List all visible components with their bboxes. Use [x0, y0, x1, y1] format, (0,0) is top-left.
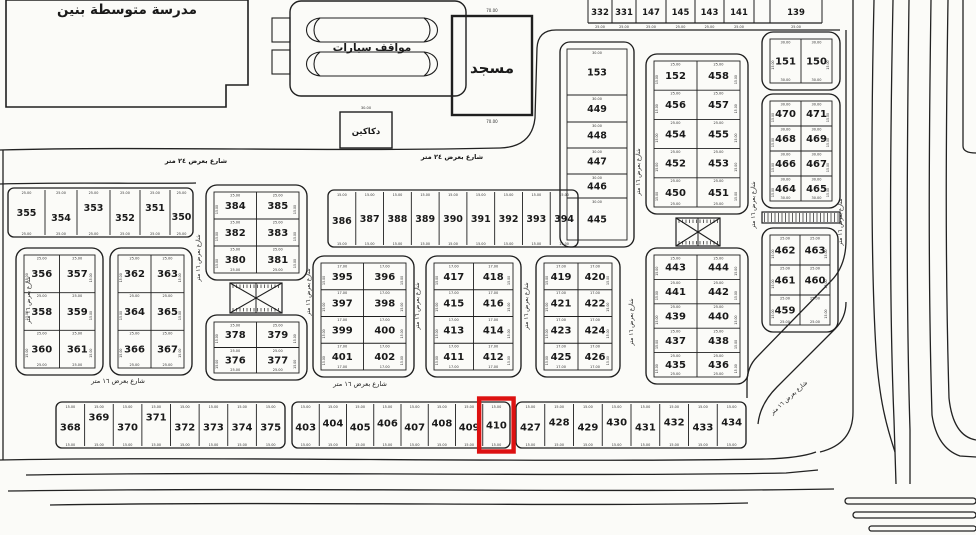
dimension-label: 25.00: [72, 332, 82, 336]
dimension-label: 15.00: [771, 113, 775, 122]
dimension-label: 30.00: [361, 106, 372, 110]
dimension-label: 15.00: [209, 443, 219, 447]
dimension-label: 25.00: [72, 363, 82, 367]
dimension-label: 25.00: [713, 330, 723, 334]
dimension-label: 15.00: [237, 405, 247, 409]
highway-lane-line: [929, 0, 976, 457]
dimension-label: 15.00: [178, 273, 182, 282]
highway-lane-line: [946, 0, 976, 440]
block-459-463: 46246315.0015.0046146015.0015.0045915.00…: [762, 228, 838, 332]
dimension-label: 25.00: [713, 305, 723, 309]
dimension-label: 25.00: [670, 330, 680, 334]
plot-number: 384: [225, 201, 246, 212]
dimension-label: 15.00: [606, 329, 610, 338]
dimension-label: 30.00: [780, 40, 790, 44]
dimension-label: 30.00: [780, 177, 790, 181]
dimension-label: 15.00: [328, 443, 338, 447]
plot-number: 411: [443, 352, 464, 363]
plot-number: 407: [404, 422, 425, 433]
dimension-label: 15.00: [698, 405, 708, 409]
dimension-label: 15.00: [89, 273, 93, 282]
plot-number: 332: [591, 8, 609, 18]
plot-number: 379: [267, 330, 288, 341]
dimension-label: 25.00: [810, 266, 820, 270]
dimension-label: 15.00: [476, 242, 486, 246]
dimension-label: 15.00: [180, 405, 190, 409]
block-362-367: 36236315.0015.0036436515.0015.0036636715…: [110, 248, 192, 375]
dimension-label: 15.00: [531, 242, 541, 246]
dimension-label: 15.00: [393, 193, 403, 197]
plot-number: 361: [67, 345, 88, 356]
plot-number: 380: [225, 255, 246, 266]
shops-parcel: دكاكين 30.00: [340, 106, 392, 148]
dimension-label: 15.00: [237, 443, 247, 447]
dimension-label: 15.00: [669, 405, 679, 409]
dimension-label: 15.00: [583, 405, 593, 409]
plot-number: 383: [267, 228, 288, 239]
plot-number: 441: [665, 287, 686, 298]
dimension-label: 15.00: [400, 356, 404, 365]
dimension-label: 15.00: [365, 193, 375, 197]
dimension-label: 30.00: [811, 78, 821, 82]
street-label: شارع بعرض ١٦ متر: [751, 181, 757, 229]
parking-stall-row: [307, 18, 438, 42]
plot-number: 385: [267, 201, 288, 212]
plot-number: 355: [17, 208, 37, 219]
dimension-label: 15.00: [641, 443, 651, 447]
utility-block: [762, 212, 840, 223]
dimension-label: 30.00: [780, 78, 790, 82]
plot-number: 421: [551, 299, 572, 310]
dimension-label: 15.00: [655, 75, 659, 84]
dimension-label: 15.00: [410, 405, 420, 409]
strip-row-139-332: 33225.0033125.0014725.0014525.0014325.00…: [588, 0, 822, 29]
road-edge-left-bottom: [0, 183, 196, 184]
dimension-label: 15.00: [65, 405, 75, 409]
dimension-label: 15.00: [178, 349, 182, 358]
plot-number: 366: [124, 345, 145, 356]
plot-number: 408: [431, 418, 452, 429]
street-label: شارع بعرض ١٦ متر: [196, 234, 202, 282]
dimension-label: 17.00: [488, 318, 498, 322]
dimension-label: 25.00: [646, 25, 656, 29]
plot-number: 152: [665, 71, 686, 82]
plot-number: 416: [483, 299, 504, 310]
plot-number: 151: [775, 56, 796, 67]
dimension-label: 15.00: [771, 60, 775, 69]
dimension-label: 15.00: [215, 205, 219, 214]
dimension-label: 25.00: [670, 62, 680, 66]
plot-number: 471: [806, 109, 827, 120]
plot-number: 458: [708, 71, 729, 82]
dimension-label: 25.00: [120, 191, 130, 195]
highway-lane-line: [891, 0, 897, 484]
dimension-label: 15.00: [531, 193, 541, 197]
dimension-label: 30.00: [811, 127, 821, 131]
dimension-label: 25.00: [810, 296, 820, 300]
dimension-label: 15.00: [655, 267, 659, 276]
plot-number: 439: [665, 311, 686, 322]
dimension-label: 25.00: [595, 25, 605, 29]
plot-number: 440: [708, 311, 729, 322]
dimension-label: 15.00: [824, 309, 828, 318]
plot-number: 391: [471, 214, 491, 225]
dimension-label: 25.00: [273, 268, 283, 272]
cadastral-map: مدرسة متوسطة بنين مواقف سيارات مسجد 70.0…: [0, 0, 976, 535]
dimension-label: 17.00: [556, 318, 566, 322]
dimension-label: 17.00: [380, 291, 390, 295]
highway-lane-line: [963, 0, 976, 153]
plot-number: 452: [665, 159, 686, 170]
plot-number: 331: [615, 8, 633, 18]
dimension-label: 25.00: [89, 232, 99, 236]
plot-number: 424: [585, 325, 606, 336]
plot-number: 356: [31, 269, 52, 280]
plot-number: 386: [332, 216, 352, 227]
dimension-label: 17.00: [337, 291, 347, 295]
dimension-label: 25.00: [713, 62, 723, 66]
dimension-label: 15.00: [545, 303, 549, 312]
dimension-label: 15.00: [123, 443, 133, 447]
dimension-label: 25.00: [713, 281, 723, 285]
dimension-label: 25.00: [162, 256, 172, 260]
plot-number: 437: [665, 336, 686, 347]
block-376-379: 37837915.0015.0037637715.0015.0025.0025.…: [206, 315, 307, 380]
dimension-label: 15.00: [771, 188, 775, 197]
dimension-label: 15.00: [383, 405, 393, 409]
dimension-label: 15.00: [435, 303, 439, 312]
plot-number: 412: [483, 352, 504, 363]
plot-number: 359: [67, 307, 88, 318]
dimension-label: 25.00: [670, 179, 680, 183]
dimension-label: 30.00: [780, 127, 790, 131]
dimension-label: 25.00: [670, 354, 680, 358]
plot-number: 428: [549, 417, 570, 428]
plot-number: 451: [708, 188, 729, 199]
plot-number: 364: [124, 307, 145, 318]
dimension-label: 17.00: [488, 264, 498, 268]
dimension-label: 15.00: [119, 349, 123, 358]
dimension-label: 25.00: [177, 232, 187, 236]
plot-number: 393: [526, 214, 546, 225]
block-450-458: 15245815.0015.0045645715.0015.0045445515…: [646, 54, 748, 214]
dimension-label: 25.00: [56, 232, 66, 236]
plot-number: 445: [587, 214, 607, 225]
dimension-label: 25.00: [713, 92, 723, 96]
plot-number: 388: [388, 214, 408, 225]
dimension-label: 15.00: [89, 311, 93, 320]
highway-lane-line: [907, 0, 910, 484]
dimension-label: 15.00: [655, 291, 659, 300]
plot-number: 454: [665, 129, 686, 140]
dimension-label: 17.00: [449, 318, 459, 322]
parking-label: مواقف سيارات: [333, 42, 411, 54]
plot-number: 371: [146, 412, 167, 423]
parking-stall-row: [307, 52, 438, 76]
dimension-label: 15.00: [393, 242, 403, 246]
dimension-label: 17.00: [590, 264, 600, 268]
dimension-label: 15.00: [293, 232, 297, 241]
dimension-label: 25.00: [37, 363, 47, 367]
dimension-label: 25.00: [713, 372, 723, 376]
dimension-label: 15.00: [293, 334, 297, 343]
plot-number: 406: [377, 418, 398, 429]
dimension-label: 15.00: [293, 205, 297, 214]
dimension-label: 15.00: [655, 340, 659, 349]
dimension-label: 30.00: [780, 196, 790, 200]
plot-number: 456: [665, 100, 686, 111]
dimension-label: 15.00: [119, 273, 123, 282]
plot-number: 376: [225, 356, 246, 367]
street-label: شارع بعرض ١٦ متر: [90, 377, 145, 385]
dimension-label: 17.00: [590, 318, 600, 322]
dimension-label: 15.00: [94, 443, 104, 447]
dimension-label: 25.00: [230, 268, 240, 272]
dimension-label: 15.00: [734, 163, 738, 172]
block-151-150: 15115015.0015.0030.0030.0030.0030.00: [762, 32, 840, 90]
dimension-label: 30.00: [592, 51, 602, 55]
dimension-label: 15.00: [437, 405, 447, 409]
dimension-label: 25.00: [670, 92, 680, 96]
dimension-label: 17.00: [380, 345, 390, 349]
dimension-label: 15.00: [826, 163, 830, 172]
dimension-label: 15.00: [545, 276, 549, 285]
dimension-label: 17.00: [590, 291, 600, 295]
dimension-label: 17.00: [590, 365, 600, 369]
dimension-label: 15.00: [293, 360, 297, 369]
plot-number: 426: [585, 352, 606, 363]
dimension-label: 15.00: [492, 443, 502, 447]
dimension-label: 15.00: [437, 443, 447, 447]
dimension-label: 17.00: [449, 291, 459, 295]
plot-number: 363: [157, 269, 178, 280]
dimension-label: 15.00: [771, 309, 775, 318]
dimension-label: 17.00: [488, 345, 498, 349]
plot-number: 420: [585, 272, 606, 283]
dimension-label: 25.00: [780, 296, 790, 300]
street-label: شارع بعرض ١٦ متر: [636, 148, 642, 196]
dimension-label: 15.00: [119, 311, 123, 320]
dimension-label: 25.00: [129, 363, 139, 367]
dimension-label: 15.00: [545, 356, 549, 365]
dimension-label: 25.00: [734, 25, 744, 29]
plot-number: 362: [124, 269, 145, 280]
dimension-label: 25.00: [713, 202, 723, 206]
bottom-road-median-bar: [845, 498, 976, 504]
plot-number: 464: [775, 184, 796, 195]
dimension-label: 15.00: [612, 405, 622, 409]
dimension-label: 15.00: [771, 163, 775, 172]
parking-parcel: مواقف سيارات: [272, 1, 466, 96]
dimension-label: 17.00: [488, 291, 498, 295]
plot-number: 403: [295, 422, 316, 433]
mosque-parcel: مسجد 70.00 70.00: [452, 8, 532, 124]
dimension-label: 15.00: [507, 303, 511, 312]
plot-number: 381: [267, 255, 288, 266]
dimension-label: 15.00: [492, 405, 502, 409]
plot-number: 438: [708, 336, 729, 347]
dimension-label: 15.00: [545, 329, 549, 338]
dimension-label: 15.00: [826, 113, 830, 122]
parking-bay: [272, 18, 290, 42]
dimension-label: 17.00: [380, 318, 390, 322]
plot-number: 395: [332, 272, 353, 283]
dimension-label: 30.00: [811, 196, 821, 200]
plot-number: 368: [60, 422, 81, 433]
dimension-label: 25.00: [120, 232, 130, 236]
dimension-label: 25.00: [273, 368, 283, 372]
dimension-label: 15.00: [655, 315, 659, 324]
dimension-label: 25.00: [56, 191, 66, 195]
dimension-label: 15.00: [507, 276, 511, 285]
plot-number: 463: [805, 245, 826, 256]
dimension-label: 15.00: [669, 443, 679, 447]
dimension-label: 15.00: [606, 356, 610, 365]
dimension-label: 25.00: [713, 150, 723, 154]
dimension-label: 25.00: [273, 323, 283, 327]
plot-number: 443: [665, 263, 686, 274]
plot-number: 417: [443, 272, 464, 283]
bottom-road-line2: [26, 470, 818, 475]
dimension-label: 15.00: [734, 267, 738, 276]
bottom-road-line3: [8, 489, 834, 491]
strip-row-427-434: 42715.0015.0042815.0015.0042915.0015.004…: [516, 402, 746, 448]
dimension-label: 25.00: [780, 320, 790, 324]
plot-number: 404: [322, 418, 343, 429]
street-label: شارع بعرض ١٦ متر: [306, 268, 312, 316]
block-464-471: 47047115.0015.0046846915.0015.0046646715…: [762, 94, 840, 208]
plot-number: 396: [374, 272, 395, 283]
dimension-label: 17.00: [449, 345, 459, 349]
plot-number: 410: [486, 420, 507, 431]
dimension-label: 70.00: [486, 8, 498, 13]
plot-number: 352: [115, 213, 135, 224]
dimension-label: 15.00: [734, 315, 738, 324]
plot-number: 145: [672, 8, 690, 18]
plot-number: 358: [31, 307, 52, 318]
street-label: شارع بعرض ١٦ متر: [838, 198, 844, 246]
plot-number: 415: [443, 299, 464, 310]
dimension-label: 25.00: [22, 191, 32, 195]
dimension-label: 17.00: [449, 264, 459, 268]
plot-number: 370: [117, 422, 138, 433]
strip-row-386-394: 38615.0015.0038715.0015.0038815.0015.003…: [328, 190, 578, 247]
parcel-map-svg: مدرسة متوسطة بنين مواقف سيارات مسجد 70.0…: [0, 0, 976, 535]
block-411-418: 41741815.0015.0041541615.0015.0041341415…: [426, 256, 521, 377]
plot-number: 369: [89, 412, 110, 423]
dimension-label: 25.00: [37, 294, 47, 298]
dimension-label: 15.00: [507, 329, 511, 338]
dimension-label: 25.00: [162, 363, 172, 367]
dimension-label: 15.00: [365, 242, 375, 246]
dimension-label: 25.00: [230, 247, 240, 251]
dimension-label: 25.00: [713, 121, 723, 125]
street-label: شارع بعرض ١٦ متر: [332, 380, 387, 388]
plot-number: 446: [587, 181, 607, 192]
dimension-label: 15.00: [504, 242, 514, 246]
dimension-label: 15.00: [554, 405, 564, 409]
plot-number: 400: [374, 325, 395, 336]
dimension-label: 25.00: [129, 332, 139, 336]
bottom-road-line4: [50, 503, 748, 505]
dimension-label: 25.00: [273, 220, 283, 224]
dimension-label: 15.00: [215, 334, 219, 343]
dimension-label: 15.00: [655, 163, 659, 172]
school-parcel: مدرسة متوسطة بنين: [6, 0, 248, 107]
plot-number: 141: [730, 8, 748, 18]
stack-153-445: 15330.0044930.0044830.0044730.0044630.00…: [560, 42, 634, 247]
utility-block: [230, 283, 282, 313]
dimension-label: 25.00: [150, 191, 160, 195]
dimension-label: 30.00: [811, 177, 821, 181]
plot-number: 139: [787, 8, 805, 18]
dimension-label: 25.00: [230, 368, 240, 372]
plot-number: 399: [332, 325, 353, 336]
dimension-label: 15.00: [266, 443, 276, 447]
bottom-road-median-bar: [853, 512, 976, 518]
plot-number: 360: [31, 345, 52, 356]
dimension-label: 15.00: [655, 104, 659, 113]
dimension-label: 15.00: [123, 405, 133, 409]
dimension-label: 30.00: [592, 176, 602, 180]
plot-number: 392: [499, 214, 519, 225]
dimension-label: 25.00: [230, 193, 240, 197]
plot-number: 402: [374, 352, 395, 363]
dimension-label: 30.00: [780, 152, 790, 156]
dimension-label: 15.00: [400, 303, 404, 312]
plot-number: 462: [775, 245, 796, 256]
dimension-label: 25.00: [670, 121, 680, 125]
dimension-label: 30.00: [811, 102, 821, 106]
street-label: شارع بعرض ١٦ متر: [524, 282, 530, 330]
dimension-label: 15.00: [400, 276, 404, 285]
dimension-label: 25.00: [619, 25, 629, 29]
block-435-444: 44344415.0015.0044144215.0015.0043944015…: [646, 248, 748, 384]
plot-number: 430: [606, 417, 627, 428]
plot-number: 453: [708, 159, 729, 170]
plot-number: 419: [551, 272, 572, 283]
dimension-label: 17.00: [556, 365, 566, 369]
dimension-label: 15.00: [606, 303, 610, 312]
plot-number: 461: [775, 275, 796, 286]
parking-bay: [272, 50, 290, 74]
dimension-label: 25.00: [72, 256, 82, 260]
dimension-label: 15.00: [151, 443, 161, 447]
dimension-label: 30.00: [811, 40, 821, 44]
dimension-label: 25.00: [162, 332, 172, 336]
plot-number: 459: [775, 305, 796, 316]
plot-number: 401: [332, 352, 353, 363]
strip-row-368-375: 36815.0015.0036915.0015.0037015.0015.003…: [56, 402, 285, 448]
dimension-label: 17.00: [380, 365, 390, 369]
dimension-label: 15.00: [655, 192, 659, 201]
street-label: شارع بعرض ٢٤ متر: [420, 153, 483, 161]
dimension-label: 17.00: [488, 365, 498, 369]
block-380-385: 38438515.0015.0038238315.0015.0038038115…: [206, 185, 307, 280]
dimension-label: 15.00: [355, 405, 365, 409]
plot-number: 448: [587, 130, 607, 141]
dimension-label: 15.00: [25, 349, 29, 358]
dimension-label: 25.00: [89, 191, 99, 195]
plot-number: 378: [225, 330, 246, 341]
dimension-label: 15.00: [526, 443, 536, 447]
dimension-label: 15.00: [301, 405, 311, 409]
dimension-label: 25.00: [72, 294, 82, 298]
dimension-label: 15.00: [435, 356, 439, 365]
dimension-label: 15.00: [448, 242, 458, 246]
dimension-label: 30.00: [592, 200, 602, 204]
dimension-label: 15.00: [293, 259, 297, 268]
